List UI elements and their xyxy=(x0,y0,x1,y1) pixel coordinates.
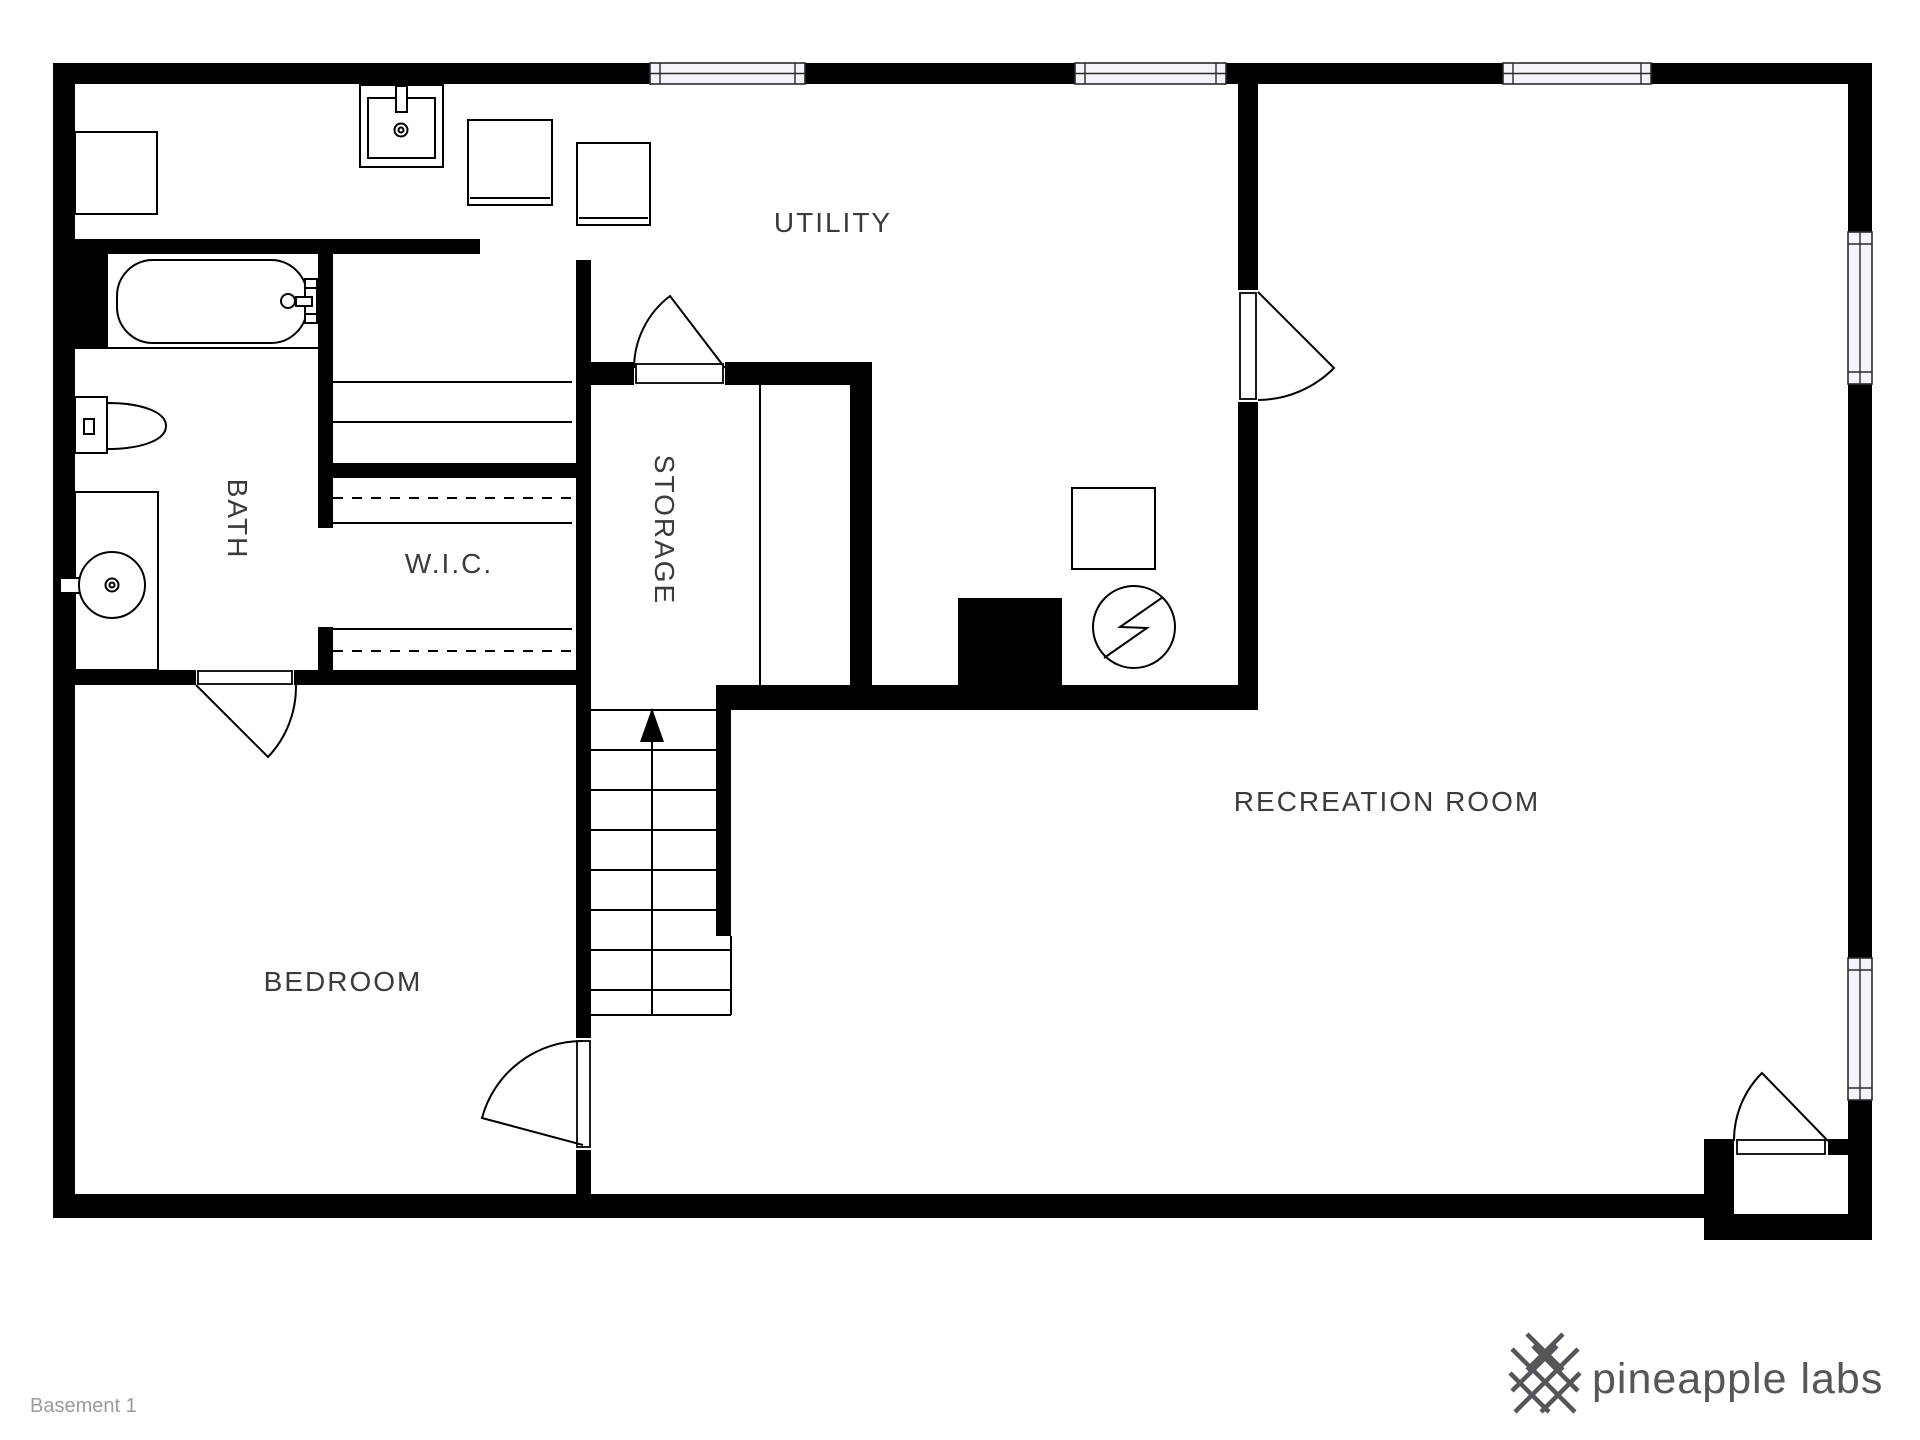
interior-walls xyxy=(75,84,1258,1194)
brand-logo-text: pineapple labs xyxy=(1592,1355,1883,1403)
room-label-bath: BATH xyxy=(222,479,253,560)
door-swing xyxy=(1734,1073,1828,1214)
brand-logo: pineapple labs xyxy=(1510,1334,1883,1412)
door-swing xyxy=(196,668,296,757)
door-swing xyxy=(634,296,725,387)
utility-sink xyxy=(360,85,443,167)
window xyxy=(1848,232,1872,384)
stairs xyxy=(591,708,731,1015)
electrical-panel-icon xyxy=(1093,586,1175,668)
room-label-utility: UTILITY xyxy=(774,207,892,238)
room-label-bedroom: BEDROOM xyxy=(264,966,423,997)
vanity-sink xyxy=(60,492,158,670)
window xyxy=(1848,958,1872,1100)
room-labels: UTILITY BATH W.I.C. STORAGE BEDROOM RECR… xyxy=(222,207,1540,997)
window xyxy=(650,63,805,84)
stairs-up-arrow-icon xyxy=(640,708,664,1000)
room-label-recreation: RECREATION ROOM xyxy=(1234,786,1540,817)
door-swing xyxy=(1236,290,1334,402)
washer xyxy=(468,120,552,205)
room-label-storage: STORAGE xyxy=(649,455,680,605)
floor-title: Basement 1 xyxy=(30,1395,137,1417)
doors xyxy=(196,290,1828,1214)
bathtub xyxy=(117,260,317,343)
floorplan-canvas: UTILITY BATH W.I.C. STORAGE BEDROOM RECR… xyxy=(0,0,1920,1440)
dryer xyxy=(577,143,650,225)
door-swing xyxy=(482,1038,593,1150)
window xyxy=(1503,63,1651,84)
toilet xyxy=(75,397,166,453)
hvac-unit xyxy=(1072,488,1155,569)
water-heater xyxy=(75,132,157,214)
pineapple-lattice-icon xyxy=(1510,1334,1580,1412)
room-label-wic: W.I.C. xyxy=(405,548,493,579)
window xyxy=(1075,63,1226,84)
